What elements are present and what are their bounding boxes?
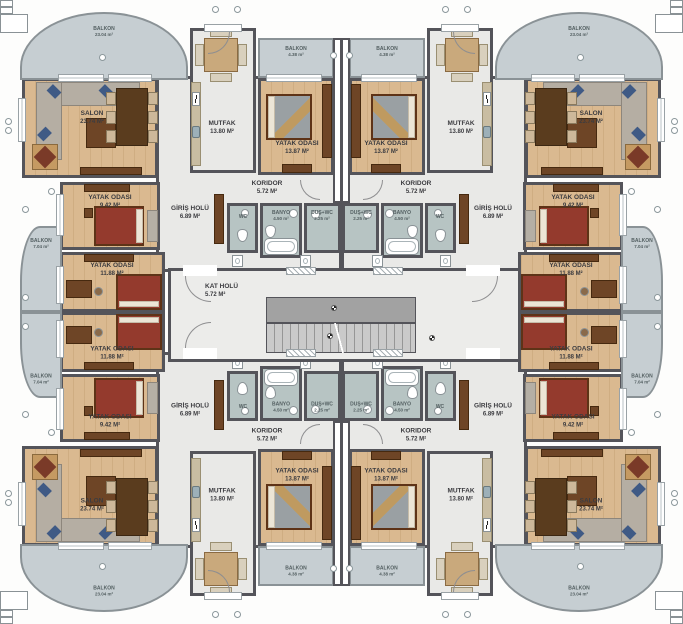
room-label-balkon-side: BALKON7.04 m² [631,374,652,387]
window [619,320,627,358]
dining-table [535,88,567,146]
wardrobe [214,194,224,244]
window [657,482,665,526]
window [58,74,104,82]
room-label-salon: SALON23.74 M² [80,110,104,127]
room-label-balkon-corner: BALKON23.04 m² [568,586,589,599]
bathtub-icon [385,369,419,386]
room-label-yatak-odasi-3: YATAK ODASI11.88 M² [90,345,133,362]
grid-bubble [654,323,661,330]
balcony-corner [20,12,188,80]
elevation-marker-icon [429,335,435,341]
washing-machine-icon [440,255,451,267]
shower-icon [0,14,28,33]
bed-pillow [524,317,564,323]
service-shaft [341,38,350,203]
rug [32,144,58,170]
hatched-wall-segment [286,349,316,357]
dresser [525,382,536,414]
grid-bubble [48,429,55,436]
grid-bubble [654,411,661,418]
grid-bubble [464,611,471,618]
bed-pillow [119,301,159,307]
room-label-mutfak: MUTFAK13.80 M² [208,487,235,504]
window [657,98,665,142]
room-label-salon: SALON23.74 M² [579,497,603,514]
wardrobe [351,84,361,158]
washing-machine-icon [232,255,243,267]
door-opening [441,592,479,600]
grid-bubble [212,6,219,13]
dresser [282,451,312,460]
sideboard [541,167,603,175]
grid-bubble [234,611,241,618]
bed-pillow [408,486,415,528]
door-opening [441,24,479,32]
desk-chair [580,328,589,337]
room-label-koridor: KORIDOR5.72 M² [401,427,432,444]
hatched-wall-segment [373,267,403,275]
wardrobe [322,466,332,540]
grid-bubble [464,6,471,13]
window [108,74,152,82]
room-label-yatak-odasi-3: YATAK ODASI11.88 M² [549,262,592,279]
dresser [147,210,158,242]
bed-pillow [408,96,415,138]
dining-chair [106,111,116,124]
room-label-koridor: KORIDOR5.72 M² [252,180,283,197]
dining-chair [148,500,158,513]
kitchen-sink-icon [483,486,491,498]
bathtub-icon [264,238,298,255]
room-label-yatak-odasi-2: YATAK ODASI9.42 M² [551,194,594,211]
washing-machine-icon [300,255,311,267]
wardrobe [84,432,130,440]
door-arc [472,276,498,302]
room-label-dus-wc: DUŞ+WC2.25 m² [350,402,372,415]
room-label-wc: WC [239,404,247,410]
room-label-wc: WC [239,214,247,220]
grid-bubble [5,118,12,125]
dining-chair [106,130,116,143]
window [579,542,625,550]
grid-bubble [442,611,449,618]
balcony-corner [20,544,188,612]
floorplan-page: BALKON23.04 m² SALON23.74 M² MUTFAK13.80… [0,0,683,624]
desk-chair [580,287,589,296]
room-label-wc: WC [436,214,444,220]
toilet-tank-icon [0,7,13,14]
balcony-corner [495,12,663,80]
grid-bubble [99,54,106,61]
window [266,74,322,82]
kitchen-sink-icon [483,126,491,138]
room-label-balkon-side: BALKON7.04 m² [631,238,652,251]
dining-chair [148,111,158,124]
bed-pillow [119,317,159,323]
kitchen-chair [479,558,488,580]
dining-table [116,478,148,536]
toilet-icon [237,382,248,395]
shower-icon [655,14,683,33]
grid-bubble [577,54,584,61]
window [108,542,152,550]
door-opening [204,592,242,600]
room-label-yatak-odasi-1: YATAK ODASI13.87 M² [275,467,318,484]
room-label-balkon-side: BALKON7.04 m² [30,238,51,251]
wardrobe [459,380,469,430]
grid-bubble [22,323,29,330]
grid-bubble [330,52,337,59]
toilet-icon [265,386,276,399]
shower-icon [655,591,683,610]
room-label-giris-holu: GİRİŞ HOLÜ6.89 M² [171,402,209,419]
desk [66,280,92,298]
window [531,542,575,550]
desk-chair [94,287,103,296]
room-label-giris-holu: GİRİŞ HOLÜ6.89 M² [171,205,209,222]
desk [591,280,617,298]
room-label-balkon-corner: BALKON23.04 m² [93,586,114,599]
balcony-corner [495,544,663,612]
wardrobe [322,84,332,158]
dining-chair [106,519,116,532]
stair-core: KAT HOLÜ5.72 M² [168,268,521,362]
room-label-mutfak: MUTFAK13.80 M² [447,487,474,504]
hatched-wall-segment [373,349,403,357]
floor-plan: BALKON23.04 m² SALON23.74 M² MUTFAK13.80… [0,0,683,624]
room-label-yatak-odasi-1: YATAK ODASI13.87 M² [364,467,407,484]
rug [32,454,58,480]
dining-chair [106,500,116,513]
wardrobe [553,184,599,192]
dresser [147,382,158,414]
dining-chair [148,130,158,143]
door-opening [466,348,500,359]
grid-bubble [671,118,678,125]
room-label-balkon-small: BALKON4.38 m² [376,566,397,579]
room-label-yatak-odasi-1: YATAK ODASI13.87 M² [364,140,407,157]
grid-bubble [22,206,29,213]
toilet-tank-icon [0,610,13,617]
washbasin-icon [289,209,298,218]
grid-bubble [5,490,12,497]
window [531,74,575,82]
toilet-icon [435,382,446,395]
room-label-banyo: BANYO4.50 m² [393,402,411,415]
door-opening [204,24,242,32]
dining-chair [525,111,535,124]
dining-chair [567,130,577,143]
window [56,266,64,304]
bed-pillow [540,209,547,243]
grid-bubble [22,294,29,301]
dining-table [535,478,567,536]
window [361,74,417,82]
desk [591,326,617,344]
bed-pillow [136,381,143,415]
dining-chair [106,92,116,105]
window [619,266,627,304]
window [56,388,64,430]
dining-chair [567,111,577,124]
apartment-unit: BALKON23.04 m² SALON23.74 M² MUTFAK13.80… [341,0,683,312]
toilet-tank-icon [670,617,683,624]
room-label-yatak-odasi-1: YATAK ODASI13.87 M² [275,140,318,157]
bathtub-icon [264,369,298,386]
dining-chair [525,519,535,532]
kitchen-chair [479,44,488,66]
room-label-balkon-corner: BALKON23.04 m² [568,26,589,39]
window [56,320,64,358]
dining-chair [567,519,577,532]
dining-chair [148,519,158,532]
door-opening [183,348,217,359]
dining-table [116,88,148,146]
dining-chair [525,130,535,143]
kitchen-chair [210,542,232,551]
kitchen-chair [451,73,473,82]
rug [625,454,651,480]
room-label-balkon-small: BALKON4.38 m² [376,46,397,59]
window [56,194,64,236]
window [619,194,627,236]
grid-bubble [212,611,219,618]
grid-bubble [442,6,449,13]
kitchen-chair [436,558,445,580]
window [579,74,625,82]
room-label-banyo: BANYO4.50 m² [272,402,290,415]
bed-pillow [268,96,275,138]
grid-bubble [671,499,678,506]
toilet-icon [407,386,418,399]
kitchen-sink-icon [192,126,200,138]
dining-chair [525,500,535,513]
sideboard [80,167,142,175]
room-label-mutfak: MUTFAK13.80 M² [447,120,474,137]
stove-icon [192,92,200,106]
grid-bubble [330,565,337,572]
shower-icon [0,591,28,610]
window [58,542,104,550]
room-label-dus-wc: DUŞ+WC2.25 m² [311,402,333,415]
wardrobe [553,432,599,440]
room-label-koridor: KORIDOR5.72 M² [252,427,283,444]
room-label-balkon-corner: BALKON23.04 m² [93,26,114,39]
dresser [525,210,536,242]
kitchen-chair [436,44,445,66]
door-arc [185,276,211,302]
apartment-unit: BALKON23.04 m² SALON23.74 M² MUTFAK13.80… [0,0,342,312]
kitchen-chair [195,558,204,580]
wardrobe [84,362,134,370]
room-label-balkon-small: BALKON4.38 m² [285,566,306,579]
service-shaft [341,421,350,586]
sideboard [541,449,603,457]
door-opening [183,265,217,276]
dresser [282,164,312,173]
room-label-dus-wc: DUŞ+WC2.25 m² [350,210,372,223]
bed-pillow [268,486,275,528]
wardrobe [351,466,361,540]
grid-bubble [654,206,661,213]
kitchen-chair [195,44,204,66]
room-label-balkon-side: BALKON7.04 m² [30,374,51,387]
desk [66,326,92,344]
stove-icon [483,518,491,532]
kitchen-chair [451,542,473,551]
wardrobe [459,194,469,244]
dining-chair [567,92,577,105]
grid-bubble [654,294,661,301]
room-label-banyo: BANYO4.50 m² [393,210,411,223]
stove-icon [192,518,200,532]
room-label-yatak-odasi-3: YATAK ODASI11.88 M² [549,345,592,362]
room-label-giris-holu: GİRİŞ HOLÜ6.89 M² [474,402,512,419]
toilet-tank-icon [670,7,683,14]
grid-bubble [671,490,678,497]
window [266,542,322,550]
wardrobe [549,362,599,370]
room-label-balkon-small: BALKON4.38 m² [285,46,306,59]
room-label-yatak-odasi-2: YATAK ODASI9.42 M² [88,194,131,211]
grid-bubble [99,563,106,570]
stair-break-line [334,323,344,353]
kitchen-sink-icon [192,486,200,498]
wardrobe [84,184,130,192]
hatched-wall-segment [286,267,316,275]
rug [625,144,651,170]
washing-machine-icon [372,255,383,267]
stair-landing [266,297,416,323]
kitchen-chair [210,73,232,82]
bed-pillow [540,381,547,415]
dining-chair [525,92,535,105]
room-label-yatak-odasi-2: YATAK ODASI9.42 M² [88,413,131,430]
room-label-wc: WC [436,404,444,410]
wardrobe [84,254,134,262]
bed-pillow [136,209,143,243]
dresser [371,164,401,173]
dining-chair [148,92,158,105]
window [18,482,26,526]
stove-icon [483,92,491,106]
washbasin-icon [289,406,298,415]
dining-chair [106,481,116,494]
grid-bubble [234,6,241,13]
dresser [371,451,401,460]
grid-bubble [577,563,584,570]
room-label-dus-wc: DUŞ+WC2.25 m² [311,210,333,223]
toilet-tank-icon [670,0,683,7]
window [18,98,26,142]
grid-bubble [628,429,635,436]
room-label-salon: SALON23.74 M² [579,110,603,127]
room-label-yatak-odasi-3: YATAK ODASI11.88 M² [90,262,133,279]
room-label-banyo: BANYO4.50 m² [272,210,290,223]
dining-chair [148,481,158,494]
room-label-mutfak: MUTFAK13.80 M² [208,120,235,137]
kitchen-chair [238,558,247,580]
dining-chair [567,500,577,513]
room-label-koridor: KORIDOR5.72 M² [401,180,432,197]
dining-chair [567,481,577,494]
grid-bubble [671,127,678,134]
grid-bubble [346,52,353,59]
bed-pillow [524,301,564,307]
kitchen-chair [238,44,247,66]
grid-bubble [5,127,12,134]
elevation-marker-icon [331,305,337,311]
grid-bubble [48,188,55,195]
elevation-marker-icon [327,333,333,339]
door-arc [185,322,211,348]
room-label-giris-holu: GİRİŞ HOLÜ6.89 M² [474,205,512,222]
grid-bubble [628,188,635,195]
room-label-yatak-odasi-2: YATAK ODASI9.42 M² [551,413,594,430]
door-opening [466,265,500,276]
room-label-salon: SALON23.74 M² [80,497,104,514]
bathtub-icon [385,238,419,255]
wardrobe [214,380,224,430]
toilet-tank-icon [0,617,13,624]
window [361,542,417,550]
wardrobe [549,254,599,262]
toilet-tank-icon [0,0,13,7]
window [619,388,627,430]
grid-bubble [5,499,12,506]
toilet-tank-icon [670,610,683,617]
desk-chair [94,328,103,337]
sideboard [80,449,142,457]
dining-chair [525,481,535,494]
grid-bubble [346,565,353,572]
grid-bubble [22,411,29,418]
